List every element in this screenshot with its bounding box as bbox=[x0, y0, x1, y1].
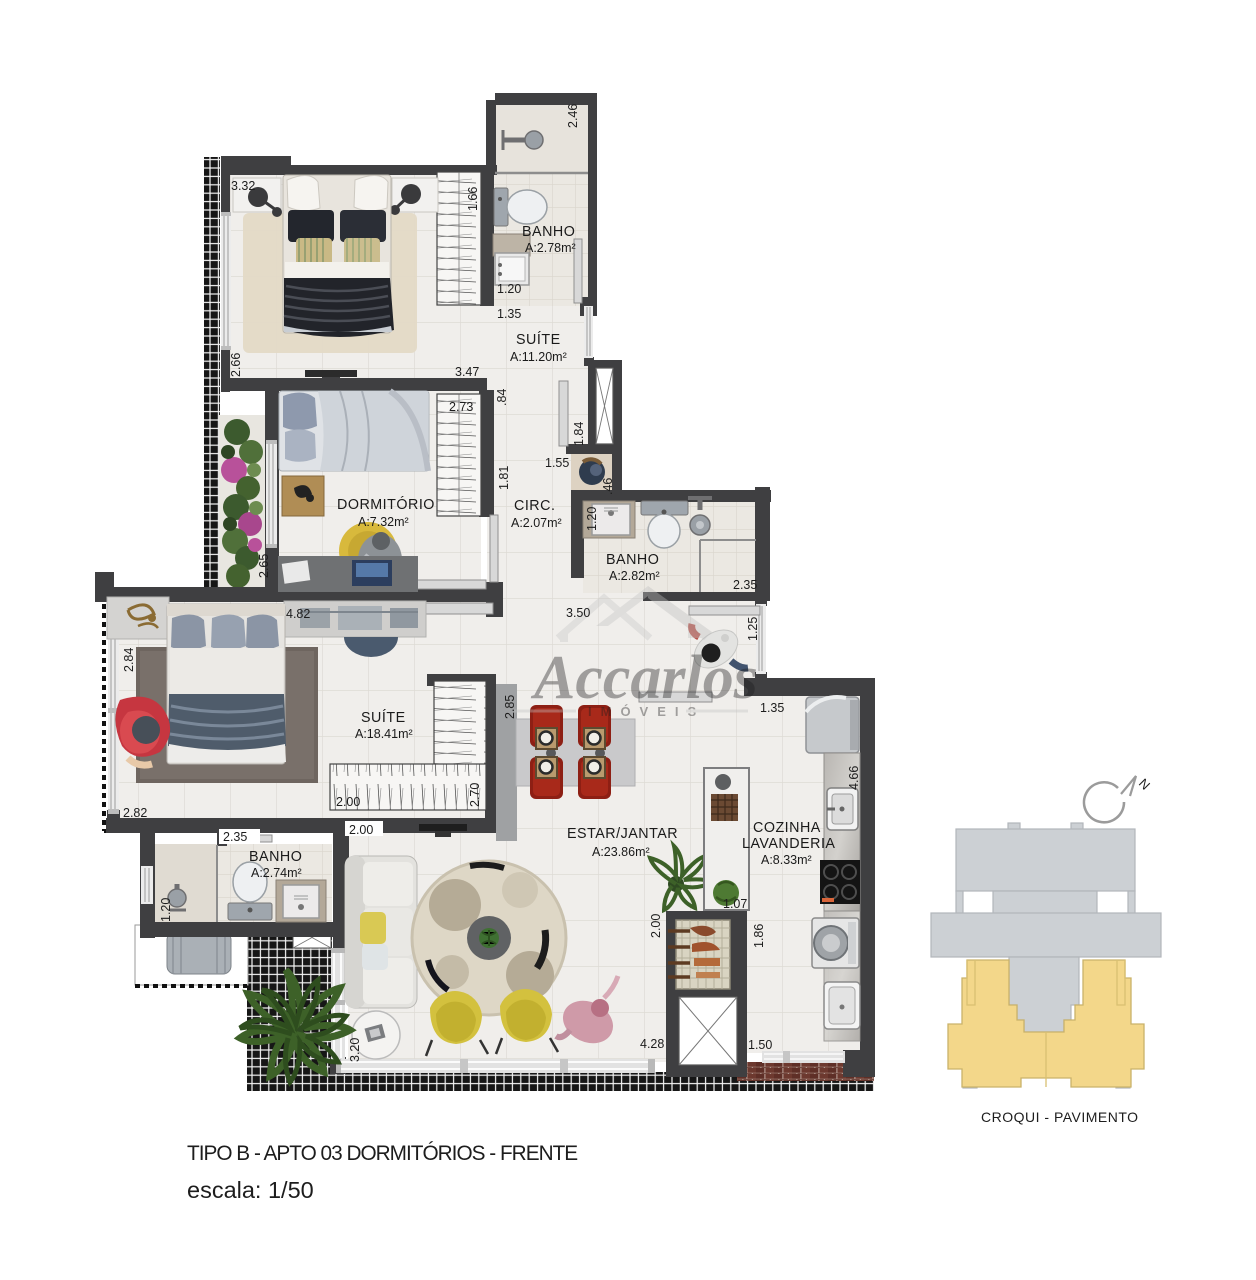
svg-text:2.73: 2.73 bbox=[449, 400, 473, 414]
svg-text:A:8.33m²: A:8.33m² bbox=[761, 853, 812, 867]
svg-text:4.28: 4.28 bbox=[640, 1037, 664, 1051]
svg-text:A:2.78m²: A:2.78m² bbox=[525, 241, 576, 255]
svg-text:4.66: 4.66 bbox=[847, 766, 861, 790]
svg-text:2.00: 2.00 bbox=[349, 823, 373, 837]
svg-text:1.07: 1.07 bbox=[723, 897, 747, 911]
svg-text:2.84: 2.84 bbox=[122, 648, 136, 672]
svg-text:TIPO B - APTO 03 DORMITÓRIOS: TIPO B - APTO 03 DORMITÓRIOS - FRENTE bbox=[187, 1142, 577, 1165]
svg-text:1.20: 1.20 bbox=[585, 507, 599, 531]
svg-text:3.50: 3.50 bbox=[566, 606, 590, 620]
svg-text:BANHO: BANHO bbox=[249, 849, 302, 865]
svg-text:1.35: 1.35 bbox=[497, 307, 521, 321]
svg-text:.46: .46 bbox=[601, 478, 615, 495]
svg-text:2.85: 2.85 bbox=[503, 695, 517, 719]
svg-text:1.86: 1.86 bbox=[752, 924, 766, 948]
svg-text:2.70: 2.70 bbox=[468, 783, 482, 807]
svg-text:2.00: 2.00 bbox=[336, 795, 360, 809]
svg-text:A:23.86m²: A:23.86m² bbox=[592, 845, 650, 859]
svg-text:2.00: 2.00 bbox=[649, 914, 663, 938]
svg-text:3.47: 3.47 bbox=[455, 365, 479, 379]
svg-text:3.32: 3.32 bbox=[231, 179, 255, 193]
svg-text:1.55: 1.55 bbox=[545, 456, 569, 470]
svg-text:SUÍTE: SUÍTE bbox=[516, 331, 561, 348]
svg-text:1.25: 1.25 bbox=[746, 617, 760, 641]
svg-text:CROQUI - PAVIMENTO: CROQUI - PAVIMENTO bbox=[981, 1109, 1139, 1125]
svg-text:escala: 1/50: escala: 1/50 bbox=[187, 1177, 314, 1203]
svg-text:DORMITÓRIO: DORMITÓRIO bbox=[337, 496, 435, 513]
svg-text:2.35: 2.35 bbox=[733, 578, 757, 592]
svg-text:1.81: 1.81 bbox=[497, 466, 511, 490]
svg-text:2.66: 2.66 bbox=[229, 353, 243, 377]
svg-text:1.35: 1.35 bbox=[760, 701, 784, 715]
svg-text:1.20: 1.20 bbox=[159, 898, 173, 922]
svg-text:1.66: 1.66 bbox=[466, 187, 480, 211]
svg-text:1.50: 1.50 bbox=[748, 1038, 772, 1052]
svg-text:ESTAR/JANTAR: ESTAR/JANTAR bbox=[567, 826, 678, 842]
svg-text:2.65: 2.65 bbox=[257, 554, 271, 578]
svg-text:4.82: 4.82 bbox=[286, 607, 310, 621]
svg-text:1.84: 1.84 bbox=[572, 422, 586, 446]
svg-text:COZINHA: COZINHA bbox=[753, 820, 821, 836]
svg-text:LAVANDERIA: LAVANDERIA bbox=[742, 836, 835, 852]
svg-text:CIRC.: CIRC. bbox=[514, 498, 555, 514]
svg-text:A:2.74m²: A:2.74m² bbox=[251, 866, 302, 880]
svg-text:3.20: 3.20 bbox=[348, 1038, 362, 1062]
svg-text:A:18.41m²: A:18.41m² bbox=[355, 727, 413, 741]
svg-text:A:2.07m²: A:2.07m² bbox=[511, 516, 562, 530]
svg-text:BANHO: BANHO bbox=[606, 552, 659, 568]
svg-text:Accarlos: Accarlos bbox=[530, 644, 758, 712]
svg-text:A:2.82m²: A:2.82m² bbox=[609, 569, 660, 583]
svg-text:SUÍTE: SUÍTE bbox=[361, 709, 406, 726]
svg-text:BANHO: BANHO bbox=[522, 224, 575, 240]
svg-text:.84: .84 bbox=[495, 389, 509, 406]
svg-text:2.46: 2.46 bbox=[566, 104, 580, 128]
svg-text:2.35: 2.35 bbox=[223, 830, 247, 844]
svg-text:A:11.20m²: A:11.20m² bbox=[510, 350, 567, 364]
svg-text:A:7.32m²: A:7.32m² bbox=[358, 515, 409, 529]
svg-text:2.82: 2.82 bbox=[123, 806, 147, 820]
svg-text:1.20: 1.20 bbox=[497, 282, 521, 296]
